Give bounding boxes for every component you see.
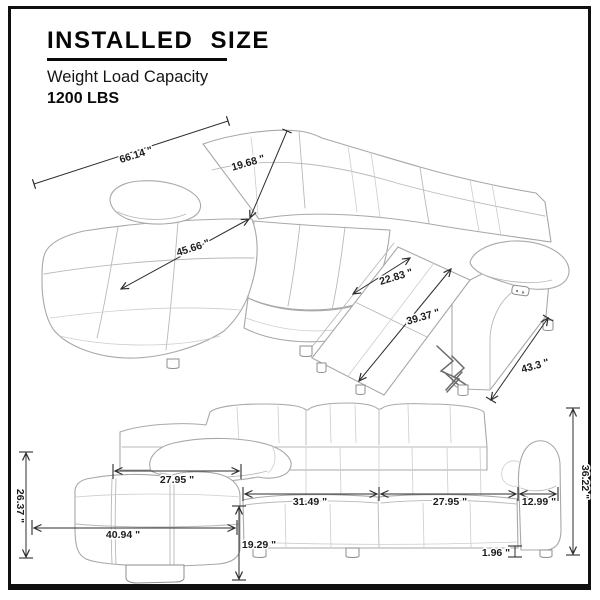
footrest-foot <box>317 363 326 373</box>
dim-chaise-total-width: 40.94 " <box>106 529 140 541</box>
dim-depth: 43.3 " <box>520 356 551 375</box>
dim-chaise-seat-width: 27.95 " <box>160 474 194 486</box>
diagram-canvas: 66.14 " 19.68 " 45.66 " 22.83 " 39.37 " … <box>0 0 600 600</box>
isometric-sofa-drawing <box>42 130 569 395</box>
dim-total-width: 66.14 " <box>118 144 154 166</box>
chaise-plinth-foot <box>126 565 184 583</box>
dim-total-height: 36.22 " <box>579 465 591 499</box>
dim-right-seat-width: 27.95 " <box>433 496 467 508</box>
dim-seat-height: 19.29 " <box>242 539 276 551</box>
left-armrest <box>110 181 201 224</box>
product-dimension-sheet: INSTALLED SIZE Weight Load Capacity 1200… <box>0 0 600 600</box>
power-button <box>511 285 529 296</box>
dim-armrest-width: 12.99 " <box>522 496 556 508</box>
front-seats <box>243 495 518 548</box>
chaise-lounge <box>42 219 257 358</box>
sofa-leg <box>167 359 179 369</box>
dim-left-seat-width: 31.49 " <box>293 496 327 508</box>
dim-leg-height: 1.96 " <box>482 547 510 559</box>
dim-chaise-back-height: 26.37 " <box>14 489 26 523</box>
front-chaise <box>75 472 240 566</box>
